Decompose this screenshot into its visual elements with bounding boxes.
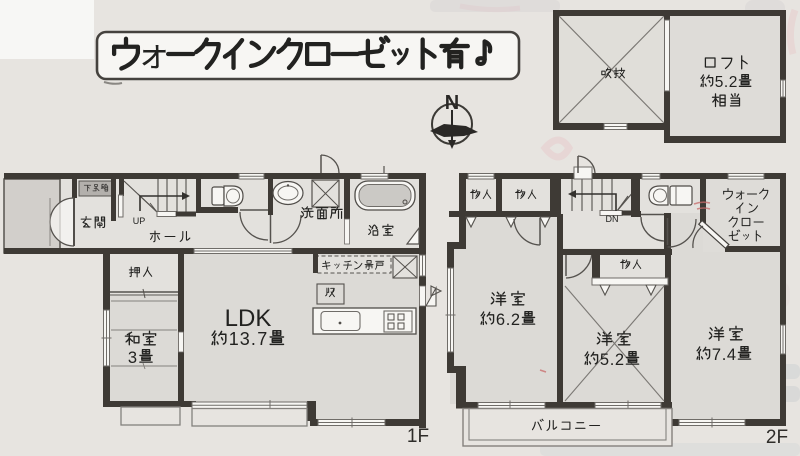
svg-text:1F: 1F xyxy=(407,426,429,447)
svg-text:.: . xyxy=(722,346,727,364)
svg-text:2: 2 xyxy=(615,351,624,369)
svg-text:1: 1 xyxy=(229,329,239,349)
svg-text:3: 3 xyxy=(240,329,250,349)
svg-text:6: 6 xyxy=(496,311,505,329)
svg-text:.: . xyxy=(610,351,615,369)
svg-text:2: 2 xyxy=(729,74,738,91)
svg-text:5: 5 xyxy=(600,351,609,369)
svg-text:7: 7 xyxy=(257,329,267,349)
svg-text:ォ: ォ xyxy=(136,36,170,74)
svg-text:.: . xyxy=(724,74,728,91)
svg-text:.: . xyxy=(506,311,511,329)
svg-text:UP: UP xyxy=(133,216,146,226)
svg-text:4: 4 xyxy=(727,346,736,364)
svg-text:7: 7 xyxy=(712,346,721,364)
svg-text:2: 2 xyxy=(511,311,520,329)
svg-text:LDK: LDK xyxy=(225,305,272,332)
svg-text:3: 3 xyxy=(128,349,137,367)
svg-text:DN: DN xyxy=(606,214,619,224)
svg-text:2F: 2F xyxy=(766,427,788,448)
svg-text:5: 5 xyxy=(715,74,724,91)
svg-text:ォ: ォ xyxy=(734,187,746,201)
svg-text:.: . xyxy=(251,329,256,349)
